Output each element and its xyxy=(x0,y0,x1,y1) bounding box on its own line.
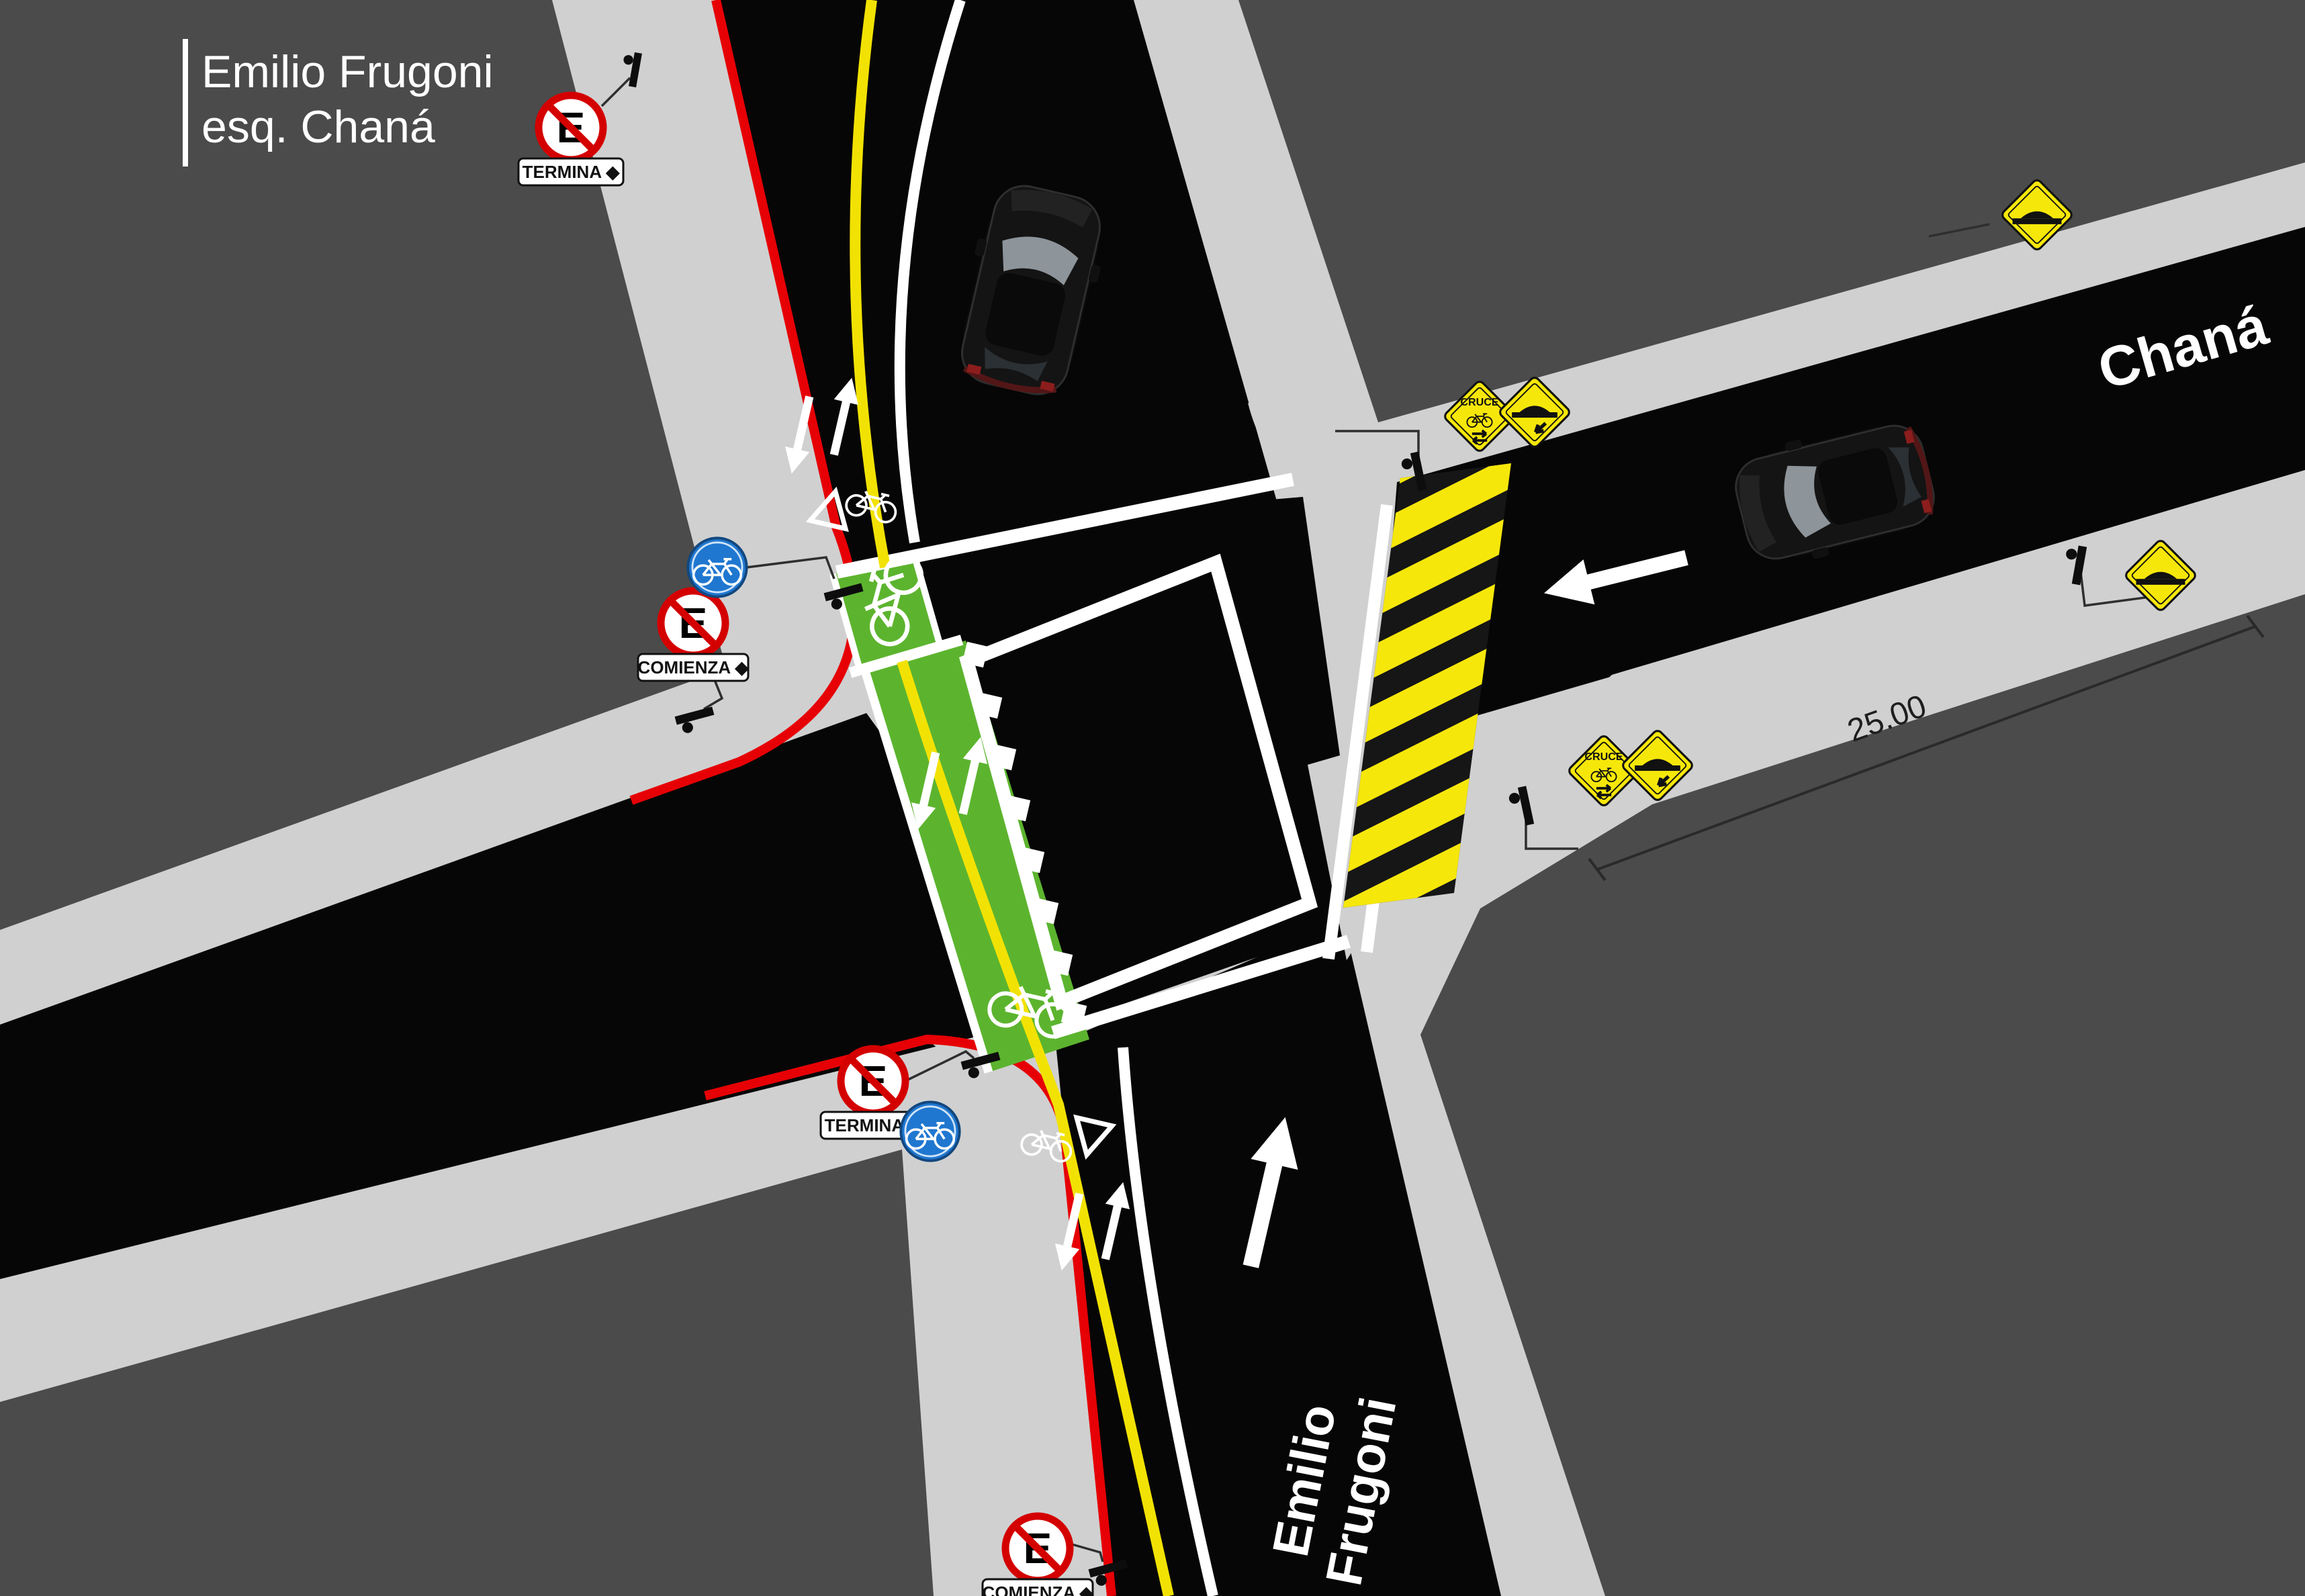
traffic-plan-canvas: E xyxy=(0,0,2305,1596)
intersection-diagram: E xyxy=(0,0,2305,1596)
plate-comienza: COMIENZA ◆ xyxy=(983,1583,1094,1596)
plate-termina: TERMINA ◆ xyxy=(523,162,621,182)
bikeway-sign-southwest xyxy=(901,1102,959,1160)
cruce-label: CRUCE xyxy=(1460,396,1499,408)
plate-comienza: COMIENZA ◆ xyxy=(638,657,750,677)
bikeway-sign-northwest xyxy=(688,538,746,596)
title-line1: Emilio Frugoni xyxy=(201,46,494,97)
title-line2: esq. Chaná xyxy=(201,101,435,152)
title-divider-bar xyxy=(183,39,188,167)
cruce-label: CRUCE xyxy=(1584,751,1623,763)
